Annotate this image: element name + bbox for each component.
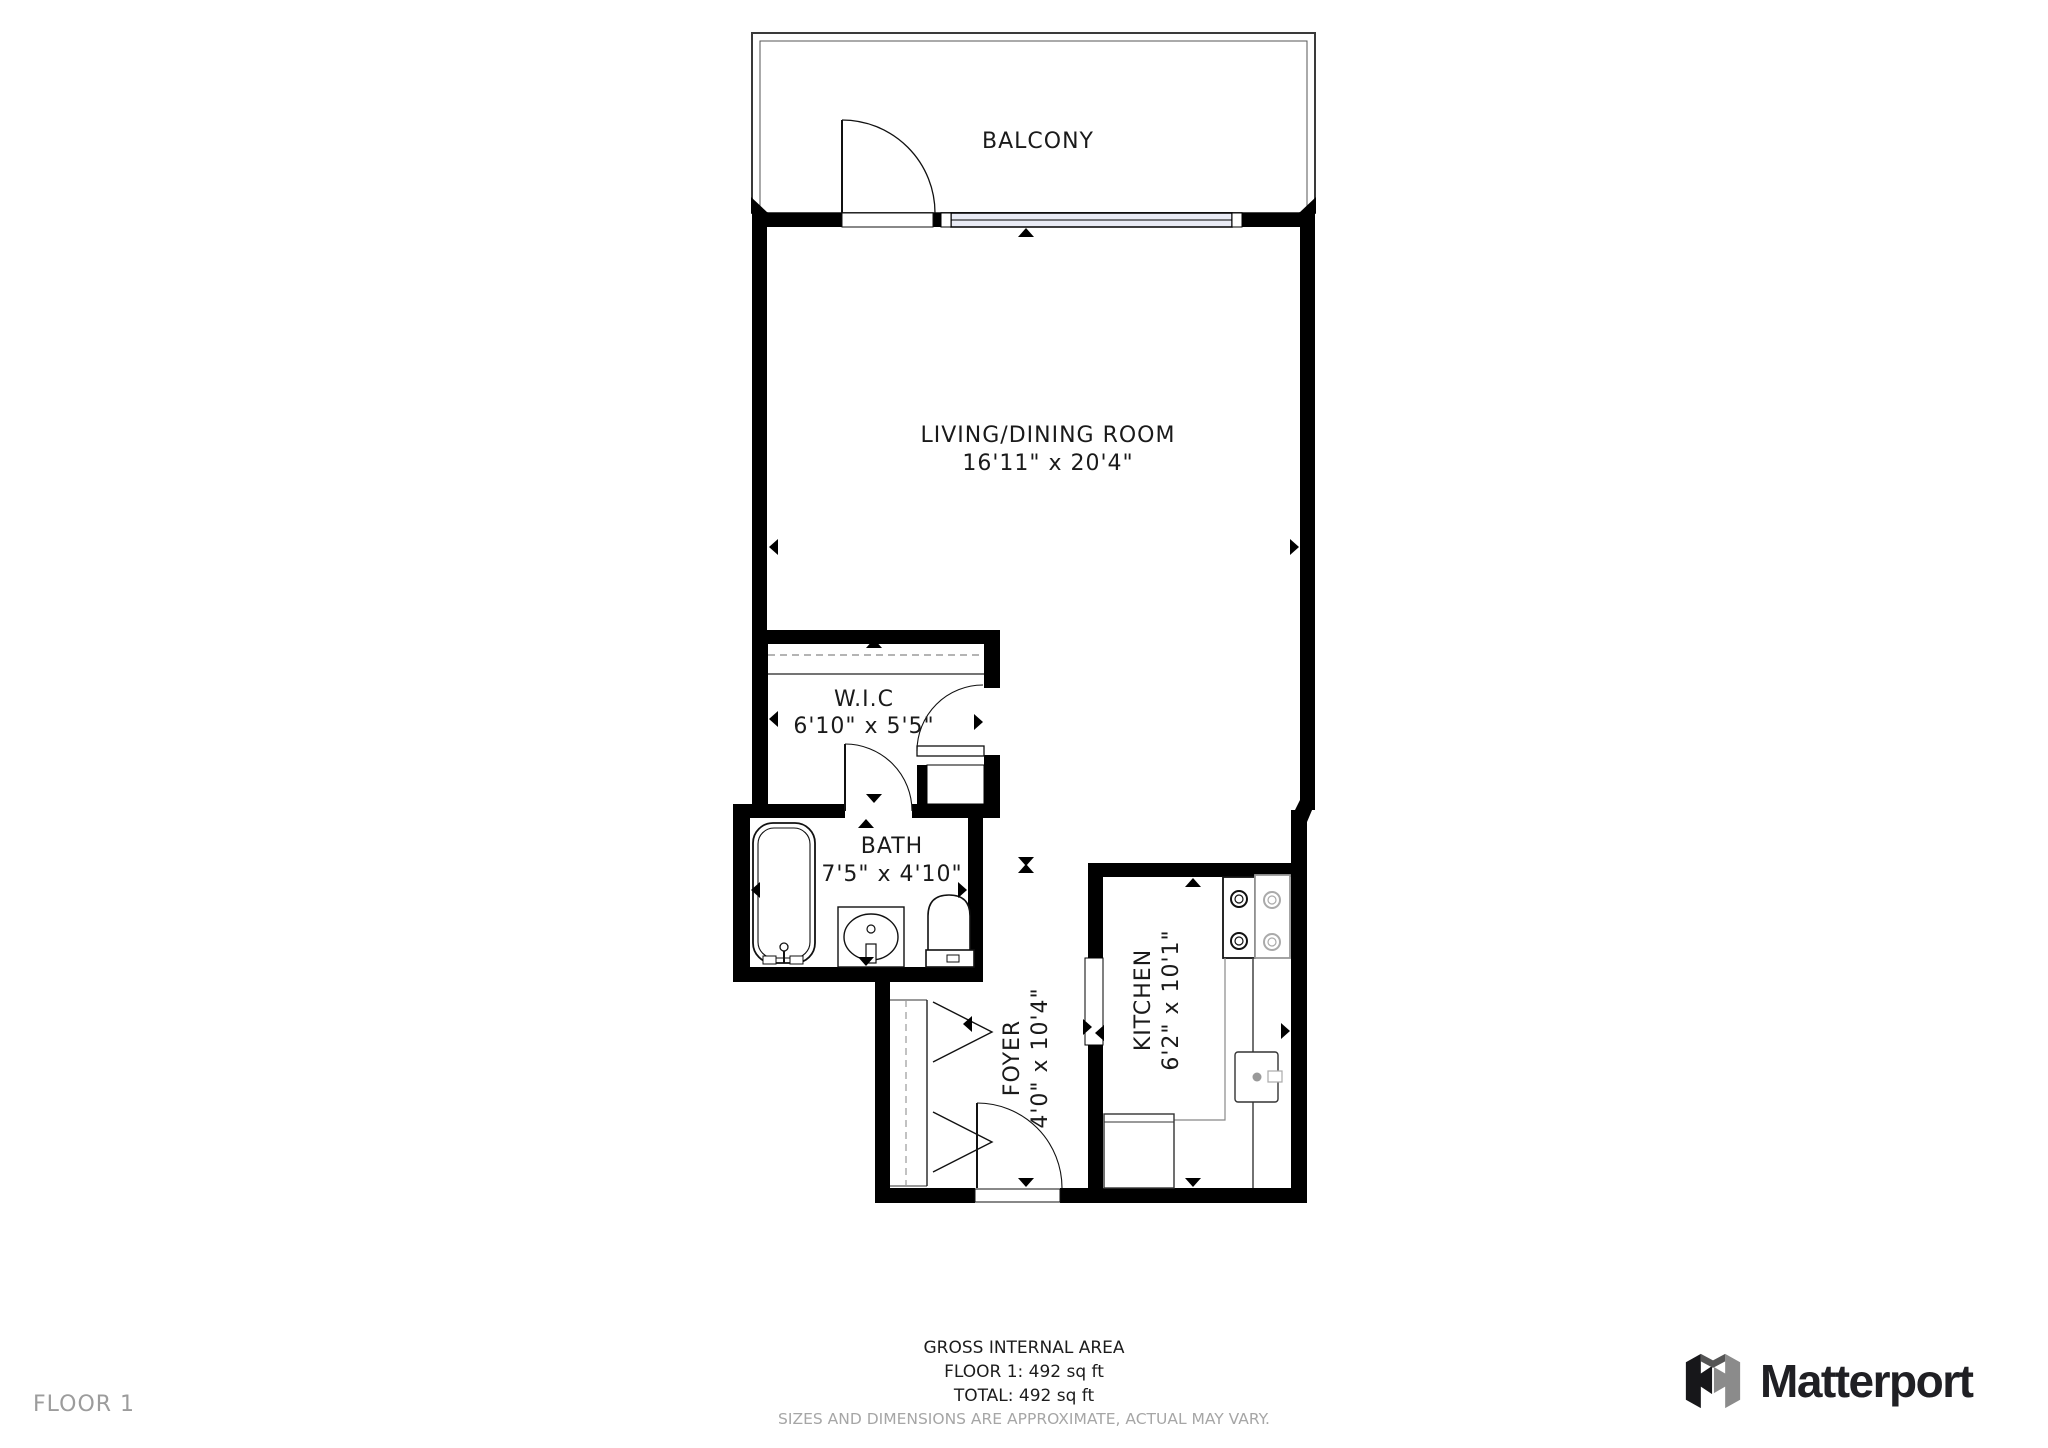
floor-plan: BALCONY LIVING/DINING ROOM 16'11" x 20'4… [0,0,2048,1448]
wic-label: W.I.C [834,687,894,712]
bath-dims: 7'5" x 4'10" [821,862,962,887]
matterport-logo: Matterport [1684,1351,1972,1411]
floor-plan-page: { "plan": { "rooms": { "balcony": { "nam… [0,0,2048,1448]
kitchen-label: KITCHEN [1131,949,1156,1051]
kitchen-dims: 6'2" x 10'1" [1159,929,1184,1070]
disclaimer: SIZES AND DIMENSIONS ARE APPROXIMATE, AC… [0,1408,2048,1431]
foyer-dims: 4'0" x 10'4" [1028,987,1053,1128]
wic-bath-door [845,744,912,811]
wic-dims: 6'10" x 5'5" [793,714,934,739]
kitchen-sink [1235,1052,1282,1102]
bathtub [753,823,815,964]
bath-label: BATH [861,834,923,859]
balcony-window [941,213,1242,227]
matterport-wordmark: Matterport [1760,1354,1972,1408]
living-room-label: LIVING/DINING ROOM [921,423,1176,448]
balcony-outline [751,33,1316,213]
matterport-mark-icon [1684,1351,1742,1411]
toilet [926,895,974,967]
kitchen-base-cabinet [1104,1114,1174,1188]
foyer-label: FOYER [1000,1020,1025,1096]
balcony-label: BALCONY [982,129,1094,154]
balcony-door [842,120,935,227]
floor-label: FLOOR 1 [33,1392,135,1417]
living-room-dims: 16'11" x 20'4" [962,451,1133,476]
stove [1223,875,1290,958]
